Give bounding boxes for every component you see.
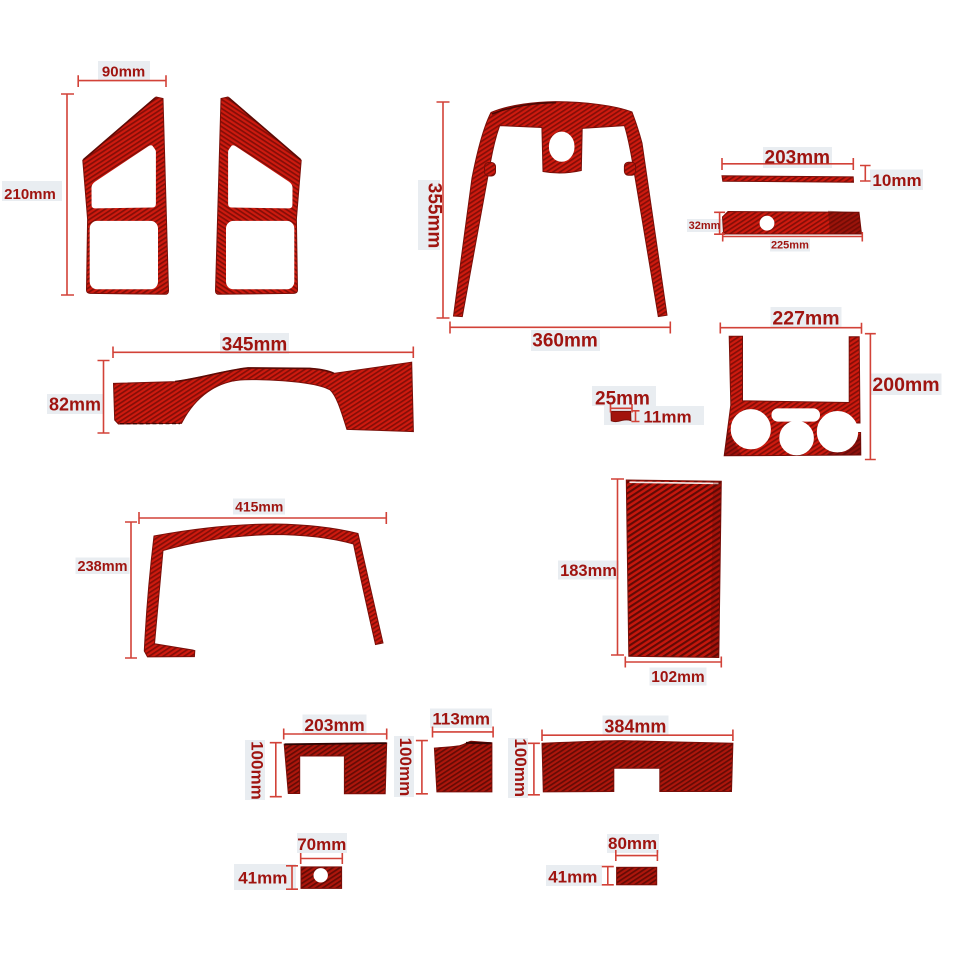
- svg-text:203mm: 203mm: [304, 715, 364, 735]
- svg-text:10mm: 10mm: [872, 171, 921, 190]
- svg-text:227mm: 227mm: [772, 308, 839, 330]
- svg-text:210mm: 210mm: [4, 186, 56, 203]
- svg-text:360mm: 360mm: [532, 331, 598, 352]
- svg-text:203mm: 203mm: [765, 148, 831, 169]
- svg-text:41mm: 41mm: [238, 868, 287, 887]
- svg-text:355mm: 355mm: [424, 183, 445, 249]
- svg-text:41mm: 41mm: [548, 868, 597, 887]
- svg-text:415mm: 415mm: [235, 499, 283, 515]
- svg-text:102mm: 102mm: [651, 669, 704, 686]
- svg-text:100mm: 100mm: [247, 741, 266, 800]
- svg-text:82mm: 82mm: [49, 395, 101, 415]
- svg-text:25mm: 25mm: [595, 389, 650, 410]
- svg-text:100mm: 100mm: [511, 738, 530, 797]
- svg-text:384mm: 384mm: [604, 716, 666, 736]
- svg-text:225mm: 225mm: [771, 240, 809, 252]
- svg-text:32mm: 32mm: [689, 220, 721, 232]
- svg-text:238mm: 238mm: [78, 559, 128, 575]
- svg-text:183mm: 183mm: [560, 562, 617, 580]
- svg-text:345mm: 345mm: [222, 335, 288, 356]
- svg-text:100mm: 100mm: [396, 738, 415, 797]
- svg-text:90mm: 90mm: [102, 64, 145, 81]
- svg-text:70mm: 70mm: [297, 835, 346, 854]
- svg-text:11mm: 11mm: [643, 408, 691, 427]
- svg-text:200mm: 200mm: [872, 374, 939, 396]
- svg-text:80mm: 80mm: [608, 834, 657, 853]
- svg-text:113mm: 113mm: [432, 709, 490, 728]
